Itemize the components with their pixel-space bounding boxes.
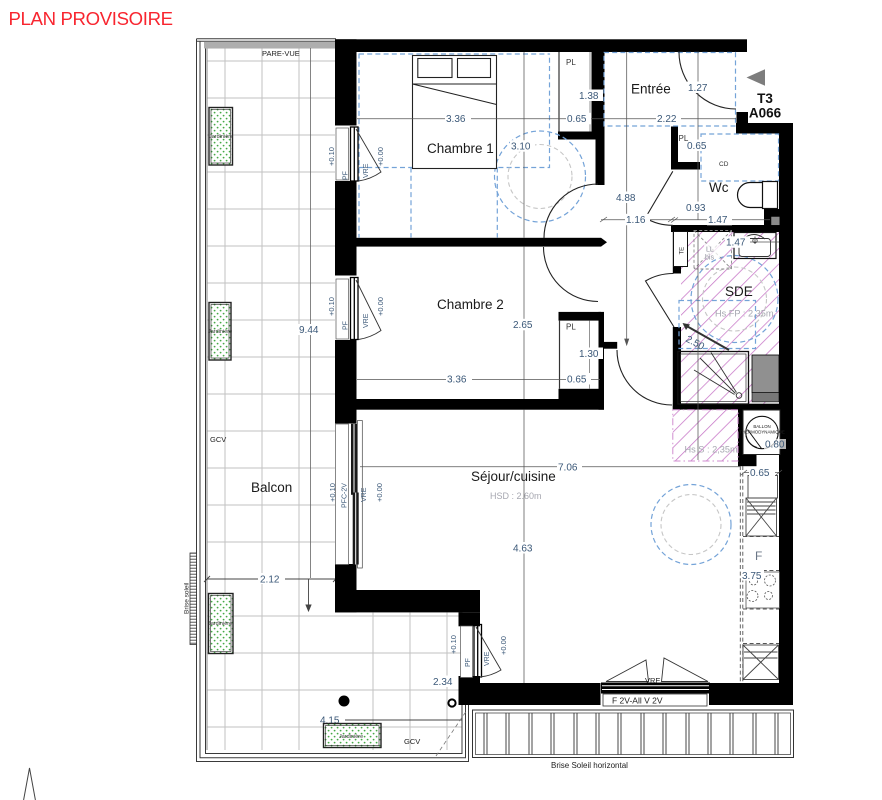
svg-text:2.22: 2.22 <box>657 114 677 125</box>
svg-text:4.88: 4.88 <box>616 193 636 204</box>
svg-text:+0.10: +0.10 <box>449 635 458 654</box>
svg-text:9.44: 9.44 <box>299 325 319 336</box>
svg-text:F 2V-All V 2V: F 2V-All V 2V <box>612 696 663 706</box>
svg-text:2.34: 2.34 <box>433 677 453 688</box>
svg-text:VRE: VRE <box>645 676 660 685</box>
svg-text:1.47: 1.47 <box>708 215 728 226</box>
svg-text:PLAN PROVISOIRE: PLAN PROVISOIRE <box>9 8 173 29</box>
svg-text:+0.00: +0.00 <box>376 147 385 166</box>
svg-text:0.65: 0.65 <box>567 374 587 385</box>
svg-text:0.65: 0.65 <box>567 114 587 125</box>
svg-text:THERMODYNAMIQUE: THERMODYNAMIQUE <box>739 430 785 435</box>
svg-text:1.27: 1.27 <box>688 83 708 94</box>
svg-text:Hs S : 2,35m: Hs S : 2,35m <box>685 445 738 455</box>
svg-text:2.12: 2.12 <box>260 575 280 586</box>
svg-text:VRE: VRE <box>361 487 368 502</box>
svg-text:PL: PL <box>566 58 576 67</box>
svg-text:Jardinière: Jardinière <box>208 621 232 627</box>
svg-text:2.65: 2.65 <box>513 320 533 331</box>
svg-text:3.36: 3.36 <box>446 114 466 125</box>
svg-text:0.93: 0.93 <box>686 203 706 214</box>
svg-text:GCV: GCV <box>404 737 420 746</box>
svg-text:Chambre 1: Chambre 1 <box>427 141 494 156</box>
svg-text:HSD : 2.60m: HSD : 2.60m <box>490 491 542 501</box>
svg-text:Brise soleil: Brise soleil <box>184 582 191 614</box>
svg-text:Hs FP : 2,35m: Hs FP : 2,35m <box>715 309 774 319</box>
svg-text:LL: LL <box>706 247 714 254</box>
svg-text:4.63: 4.63 <box>513 543 533 554</box>
svg-text:Wc: Wc <box>709 180 729 195</box>
svg-text:PL: PL <box>679 134 689 143</box>
svg-text:Séjour/cuisine: Séjour/cuisine <box>471 469 556 484</box>
svg-text:PARE-VUE: PARE-VUE <box>262 49 300 58</box>
svg-text:1.38: 1.38 <box>579 91 599 102</box>
svg-text:Entrée: Entrée <box>631 82 671 97</box>
svg-text:0.65: 0.65 <box>750 468 770 479</box>
svg-text:PF: PF <box>343 321 350 330</box>
svg-text:3.36: 3.36 <box>447 374 467 385</box>
svg-text:VRE: VRE <box>484 651 491 666</box>
svg-text:+0.00: +0.00 <box>375 483 384 502</box>
svg-text:3.10: 3.10 <box>511 142 531 153</box>
svg-text:PF: PF <box>465 658 472 667</box>
svg-text:PF: PF <box>343 171 350 180</box>
svg-text:3.75: 3.75 <box>742 571 762 582</box>
svg-text:F: F <box>755 549 762 563</box>
svg-text:bis: bis <box>705 255 714 262</box>
svg-text:+0.00: +0.00 <box>499 636 508 655</box>
svg-text:BALLON: BALLON <box>753 424 770 429</box>
svg-text:+0.10: +0.10 <box>327 297 336 316</box>
svg-text:+0.10: +0.10 <box>327 147 336 166</box>
svg-text:TE: TE <box>680 247 686 255</box>
svg-text:Jardinière: Jardinière <box>339 734 363 740</box>
svg-text:T3: T3 <box>757 91 773 106</box>
svg-text:1.30: 1.30 <box>579 349 599 360</box>
svg-text:SDE: SDE <box>725 284 753 299</box>
svg-text:PFC-2V: PFC-2V <box>342 483 349 508</box>
svg-text:Balcon: Balcon <box>251 480 292 495</box>
svg-text:PL: PL <box>566 323 576 332</box>
svg-text:Brise Soleil horizontal: Brise Soleil horizontal <box>551 761 628 770</box>
svg-text:GCV: GCV <box>210 435 226 444</box>
svg-text:Jardinière: Jardinière <box>208 329 232 335</box>
svg-text:Chambre 2: Chambre 2 <box>437 297 504 312</box>
svg-text:0.80: 0.80 <box>765 440 785 451</box>
svg-text:A066: A066 <box>749 106 782 121</box>
svg-text:+0.00: +0.00 <box>376 297 385 316</box>
svg-text:VRE: VRE <box>363 313 370 328</box>
svg-text:1.16: 1.16 <box>626 215 646 226</box>
svg-text:+0.10: +0.10 <box>328 483 337 502</box>
svg-text:1.47: 1.47 <box>726 238 746 249</box>
svg-text:7.06: 7.06 <box>558 462 578 473</box>
svg-text:VRE: VRE <box>363 163 370 178</box>
svg-text:0.65: 0.65 <box>687 141 707 152</box>
svg-text:Jardinière: Jardinière <box>209 134 233 140</box>
svg-text:CD: CD <box>719 161 729 168</box>
